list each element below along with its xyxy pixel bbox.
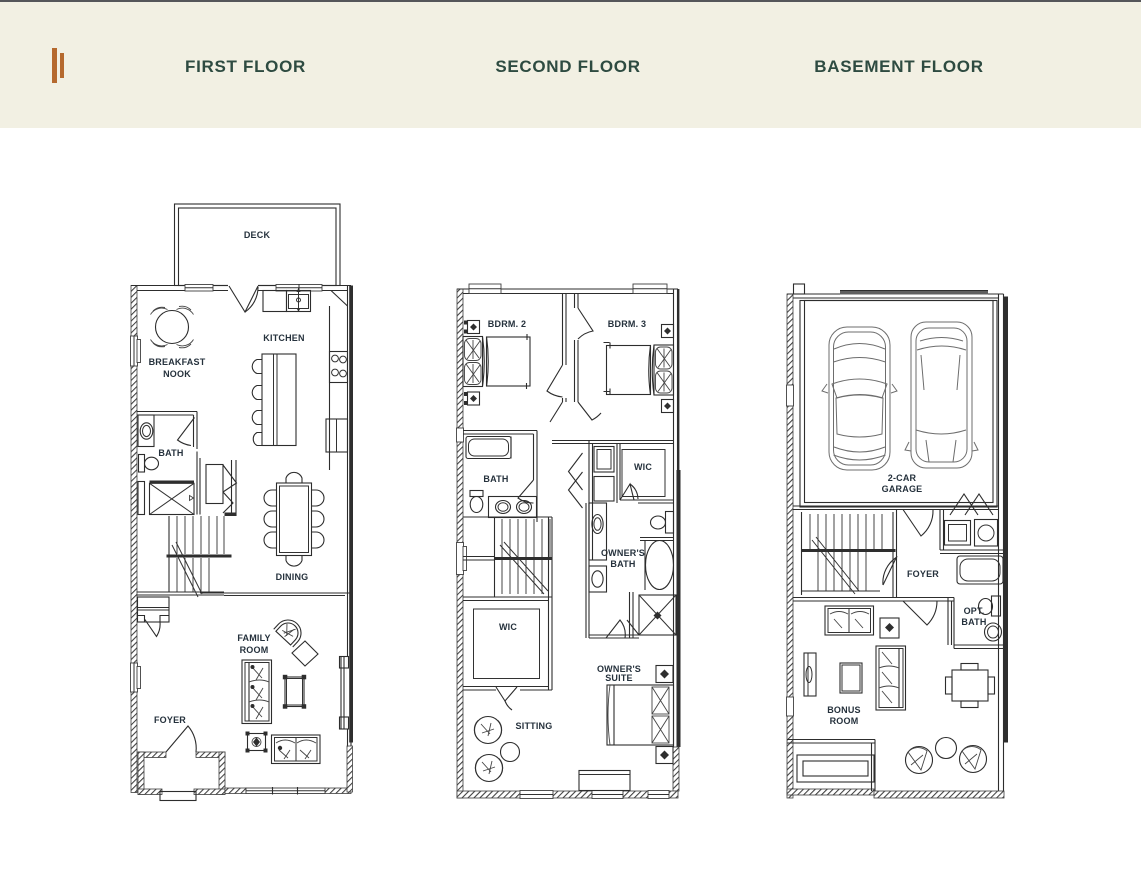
svg-text:ROOM: ROOM — [240, 645, 269, 655]
svg-text:ROOM: ROOM — [830, 716, 859, 726]
svg-text:2-CAR: 2-CAR — [888, 473, 917, 483]
svg-text:BONUS: BONUS — [827, 705, 861, 715]
svg-text:FAMILY: FAMILY — [237, 633, 270, 643]
svg-text:GARAGE: GARAGE — [882, 484, 923, 494]
svg-text:KITCHEN: KITCHEN — [263, 333, 304, 343]
svg-text:BATH: BATH — [961, 617, 986, 627]
svg-text:DINING: DINING — [276, 572, 309, 582]
svg-text:BATH: BATH — [158, 448, 183, 458]
svg-text:DECK: DECK — [244, 230, 271, 240]
svg-text:BREAKFAST: BREAKFAST — [149, 357, 206, 367]
svg-text:NOOK: NOOK — [163, 369, 191, 379]
svg-text:SITTING: SITTING — [516, 721, 553, 731]
svg-text:BATH: BATH — [483, 474, 508, 484]
svg-text:FOYER: FOYER — [907, 569, 939, 579]
svg-text:OPT.: OPT. — [964, 606, 985, 616]
svg-text:BDRM. 2: BDRM. 2 — [488, 319, 526, 329]
svg-text:FOYER: FOYER — [154, 715, 186, 725]
svg-text:BDRM. 3: BDRM. 3 — [608, 319, 646, 329]
svg-text:SUITE: SUITE — [605, 673, 633, 683]
svg-text:WIC: WIC — [499, 622, 517, 632]
svg-text:WIC: WIC — [634, 462, 652, 472]
svg-text:BATH: BATH — [610, 559, 635, 569]
svg-text:OWNER'S: OWNER'S — [601, 548, 645, 558]
